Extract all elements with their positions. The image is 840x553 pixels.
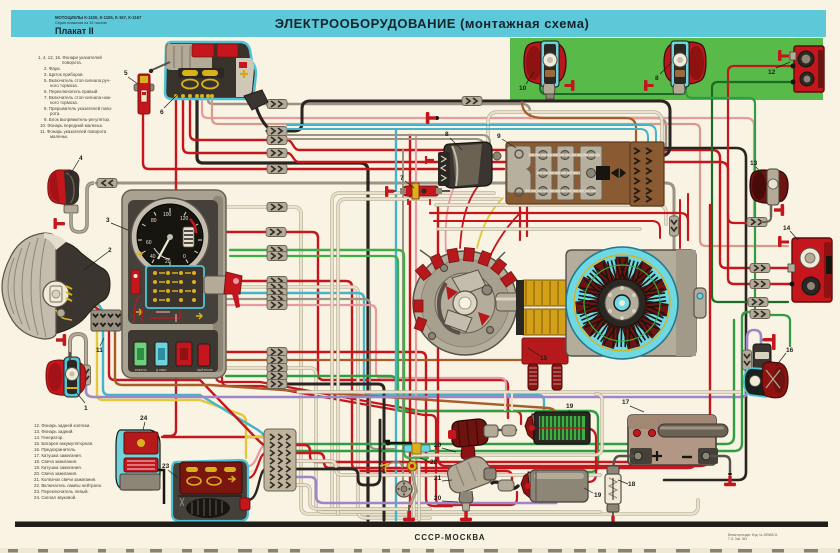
svg-text:2. Фара.: 2. Фара. <box>44 66 61 71</box>
svg-text:5: 5 <box>124 70 128 77</box>
svg-text:маленьк.: маленьк. <box>50 134 68 139</box>
svg-text:22. Включатель лампы нейтрал: 22. Включатель лампы нейтрали. <box>34 483 102 488</box>
svg-text:6: 6 <box>160 109 164 116</box>
svg-text:120: 120 <box>180 216 189 222</box>
svg-text:19: 19 <box>566 403 574 410</box>
svg-text:17. Катушка зажигания.: 17. Катушка зажигания. <box>34 453 82 458</box>
svg-text:Д.СВЕТ: Д.СВЕТ <box>156 368 167 372</box>
svg-text:18: 18 <box>628 481 636 488</box>
svg-text:10: 10 <box>519 85 527 92</box>
svg-text:19: 19 <box>594 492 602 499</box>
svg-text:ЭЛЕКТРООБОРУДОВАНИЕ (монтажна: ЭЛЕКТРООБОРУДОВАНИЕ (монтажная схема) <box>275 16 590 31</box>
svg-text:16. Предохранитель.: 16. Предохранитель. <box>34 447 77 452</box>
svg-text:19. Катушка зажигания.: 19. Катушка зажигания. <box>34 465 82 470</box>
svg-text:15: 15 <box>540 355 548 362</box>
svg-text:Плакат II: Плакат II <box>55 26 94 36</box>
svg-text:поворота.: поворота. <box>62 60 82 65</box>
svg-text:23: 23 <box>162 463 170 470</box>
svg-text:8: 8 <box>655 75 659 82</box>
svg-text:40: 40 <box>150 254 156 260</box>
svg-text:14. Генератор.: 14. Генератор. <box>34 435 64 440</box>
svg-text:23. Переключатель левый.: 23. Переключатель левый. <box>34 489 89 494</box>
svg-text:13. Фонарь задний.: 13. Фонарь задний. <box>34 429 74 434</box>
svg-text:21. Колпачок свечи зажигания: 21. Колпачок свечи зажигания. <box>34 477 96 482</box>
svg-text:24. Сигнал звуковой.: 24. Сигнал звуковой. <box>34 495 76 500</box>
svg-text:ного тормоза.: ного тормоза. <box>50 100 78 105</box>
svg-text:рота.: рота. <box>50 111 60 116</box>
svg-text:Т. 8. Зак. 394: Т. 8. Зак. 394 <box>728 537 747 541</box>
svg-text:20. Свеча зажигания.: 20. Свеча зажигания. <box>34 471 77 476</box>
svg-text:9: 9 <box>497 133 501 140</box>
svg-text:12. Фонарь задней коляски.: 12. Фонарь задней коляски. <box>34 423 91 428</box>
svg-text:18. Свеча зажигания.: 18. Свеча зажигания. <box>34 459 77 464</box>
svg-text:1: 1 <box>84 405 88 412</box>
svg-text:Серия плакатов из 19 листов: Серия плакатов из 19 листов <box>55 21 107 25</box>
svg-text:14: 14 <box>783 225 791 232</box>
svg-text:ного тормоза.: ного тормоза. <box>50 83 78 88</box>
svg-text:РАБОТА: РАБОТА <box>135 368 147 372</box>
svg-text:4: 4 <box>79 155 83 162</box>
svg-text:3: 3 <box>106 217 110 224</box>
svg-text:17: 17 <box>622 399 630 406</box>
svg-text:СССР-МОСКВА: СССР-МОСКВА <box>414 533 485 542</box>
svg-text:11: 11 <box>96 347 103 354</box>
svg-text:2: 2 <box>108 247 112 254</box>
svg-text:80: 80 <box>151 218 157 224</box>
svg-text:21: 21 <box>434 475 442 482</box>
svg-text:3. Щиток приборов.: 3. Щиток приборов. <box>44 72 84 77</box>
svg-text:МОТОЦИКЛЫ К-1100, К-1105, К-15: МОТОЦИКЛЫ К-1100, К-1105, К-157, К-1167 <box>55 15 142 20</box>
svg-text:9. Блок выпрямитель-регулято: 9. Блок выпрямитель-регулятор. <box>44 117 110 122</box>
svg-text:15. Батарея аккумуляторная.: 15. Батарея аккумуляторная. <box>34 441 93 446</box>
svg-text:100: 100 <box>163 212 172 218</box>
svg-text:0: 0 <box>183 254 186 260</box>
svg-text:24: 24 <box>140 415 148 422</box>
svg-text:8: 8 <box>445 131 449 138</box>
svg-text:20: 20 <box>434 442 442 449</box>
svg-text:10. Фонарь передний маленьк.: 10. Фонарь передний маленьк. <box>40 123 103 128</box>
svg-text:7: 7 <box>400 175 404 182</box>
svg-text:20: 20 <box>165 259 171 265</box>
svg-text:20: 20 <box>434 495 442 502</box>
svg-text:12: 12 <box>768 69 776 76</box>
svg-text:13: 13 <box>750 160 758 167</box>
svg-text:60: 60 <box>146 240 152 246</box>
svg-text:6. Переключатель правый.: 6. Переключатель правый. <box>44 89 98 94</box>
svg-text:НЕЙТРАЛЬ: НЕЙТРАЛЬ <box>197 368 213 372</box>
svg-text:16: 16 <box>786 347 794 354</box>
svg-text:22: 22 <box>430 459 438 466</box>
